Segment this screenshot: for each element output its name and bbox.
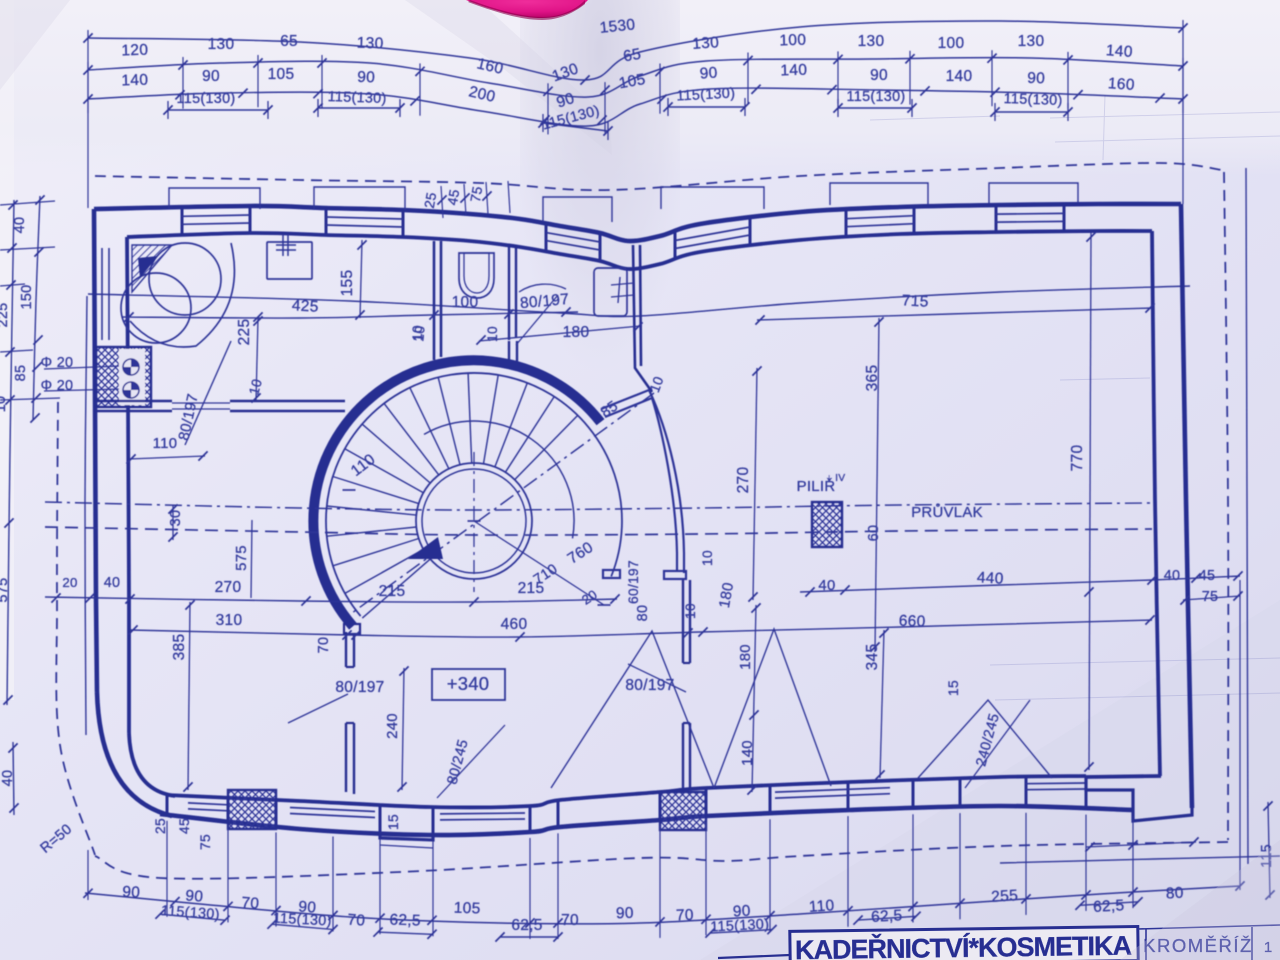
svg-text:225: 225 <box>0 303 11 328</box>
svg-text:10: 10 <box>411 325 427 342</box>
svg-text:115(130): 115(130) <box>177 91 236 107</box>
svg-text:90: 90 <box>1027 70 1046 88</box>
svg-text:130: 130 <box>692 34 720 53</box>
svg-text:575: 575 <box>234 545 250 571</box>
svg-text:15: 15 <box>946 680 961 696</box>
svg-text:310: 310 <box>216 612 243 629</box>
svg-text:KADEŘNICTVÍ*KOSMETIKA: KADEŘNICTVÍ*KOSMETIKA <box>795 930 1132 960</box>
svg-text:115(130): 115(130) <box>272 910 332 929</box>
svg-text:90: 90 <box>870 67 888 84</box>
svg-text:130: 130 <box>208 36 235 53</box>
svg-text:70: 70 <box>316 637 332 654</box>
svg-text:90: 90 <box>357 69 376 87</box>
svg-text:660: 660 <box>898 613 925 631</box>
svg-text:100: 100 <box>938 35 965 52</box>
svg-text:160: 160 <box>1107 75 1135 94</box>
svg-text:PRŮVLAK: PRŮVLAK <box>911 503 983 521</box>
svg-text:62,5: 62,5 <box>871 907 903 926</box>
svg-text:270: 270 <box>215 579 242 596</box>
svg-text:60: 60 <box>866 525 882 542</box>
svg-text:10: 10 <box>0 396 9 413</box>
svg-text:215: 215 <box>379 583 406 600</box>
svg-text:385: 385 <box>171 634 188 661</box>
svg-text:115(130): 115(130) <box>847 89 906 105</box>
svg-text:90: 90 <box>616 905 635 923</box>
svg-text:90: 90 <box>202 68 220 85</box>
svg-text:270: 270 <box>735 467 752 494</box>
svg-text:70: 70 <box>241 894 260 912</box>
svg-text:40: 40 <box>12 217 28 234</box>
svg-text:770: 770 <box>1069 445 1086 472</box>
svg-text:715: 715 <box>901 292 929 310</box>
svg-text:30: 30 <box>168 510 184 527</box>
svg-text:150: 150 <box>19 285 35 310</box>
svg-text:130: 130 <box>1018 33 1045 50</box>
svg-text:62,5: 62,5 <box>389 911 421 929</box>
svg-text:100: 100 <box>779 32 806 50</box>
svg-text:130: 130 <box>858 33 885 50</box>
svg-text:115(130): 115(130) <box>1003 91 1062 109</box>
svg-text:45: 45 <box>445 188 463 206</box>
svg-text:90: 90 <box>699 64 718 82</box>
svg-text:75: 75 <box>1202 589 1219 605</box>
svg-text:90: 90 <box>185 887 204 905</box>
svg-text:225: 225 <box>236 319 253 346</box>
svg-text:80: 80 <box>635 605 651 622</box>
svg-text:↓ IV: ↓ IV <box>827 473 846 484</box>
svg-text:70: 70 <box>347 911 366 929</box>
svg-text:440: 440 <box>976 569 1004 587</box>
svg-text:140: 140 <box>121 72 148 90</box>
svg-text:70: 70 <box>676 907 695 925</box>
svg-text:10: 10 <box>700 550 715 566</box>
svg-text:460: 460 <box>501 616 528 633</box>
svg-text:115(130): 115(130) <box>710 916 770 935</box>
svg-text:140: 140 <box>740 740 756 766</box>
svg-text:115(130): 115(130) <box>676 85 736 104</box>
svg-text:40: 40 <box>1164 568 1181 584</box>
svg-text:155: 155 <box>339 270 356 297</box>
svg-text:+340: +340 <box>447 673 490 694</box>
svg-text:40: 40 <box>104 575 121 591</box>
svg-text:180: 180 <box>563 324 590 341</box>
svg-text:110: 110 <box>153 436 178 452</box>
svg-text:365: 365 <box>864 365 881 392</box>
svg-text:425: 425 <box>291 297 319 315</box>
svg-text:100: 100 <box>452 294 479 311</box>
svg-text:10: 10 <box>485 326 500 342</box>
svg-text:25: 25 <box>153 818 168 834</box>
svg-text:25: 25 <box>422 191 440 209</box>
svg-text:80/197: 80/197 <box>625 677 674 694</box>
svg-text:20: 20 <box>62 575 77 590</box>
svg-text:120: 120 <box>121 42 148 60</box>
svg-text:345: 345 <box>864 644 881 671</box>
svg-text:180: 180 <box>738 644 754 670</box>
svg-text:65: 65 <box>622 46 643 66</box>
svg-text:15: 15 <box>386 814 401 830</box>
svg-text:Φ 20: Φ 20 <box>41 378 74 394</box>
svg-text:80: 80 <box>1165 885 1184 903</box>
svg-text:240: 240 <box>385 713 401 739</box>
svg-text:75: 75 <box>198 834 213 850</box>
svg-text:60/197: 60/197 <box>626 560 641 604</box>
svg-text:45: 45 <box>177 818 192 834</box>
svg-text:80/197: 80/197 <box>335 679 384 696</box>
svg-text:105: 105 <box>268 66 295 83</box>
svg-text:40: 40 <box>0 770 16 787</box>
svg-text:40: 40 <box>818 578 835 594</box>
svg-text:140: 140 <box>780 62 807 80</box>
svg-text:255: 255 <box>991 887 1019 906</box>
svg-text:45: 45 <box>1199 568 1216 584</box>
svg-text:10: 10 <box>683 603 698 619</box>
svg-text:85: 85 <box>13 365 29 382</box>
svg-text:75: 75 <box>468 185 486 203</box>
svg-text:62,5: 62,5 <box>511 917 542 934</box>
svg-text:215: 215 <box>518 580 545 597</box>
svg-text:130: 130 <box>356 35 383 53</box>
svg-text:115(130): 115(130) <box>327 89 386 107</box>
svg-text:140: 140 <box>946 68 973 85</box>
svg-text:70: 70 <box>561 912 579 929</box>
svg-text:90: 90 <box>122 884 141 902</box>
svg-text:65: 65 <box>280 33 298 50</box>
svg-text:62,5: 62,5 <box>1093 897 1125 916</box>
svg-text:575: 575 <box>0 578 11 603</box>
svg-text:140: 140 <box>1105 42 1133 61</box>
svg-text:110: 110 <box>808 897 835 916</box>
svg-text:105: 105 <box>453 900 480 918</box>
